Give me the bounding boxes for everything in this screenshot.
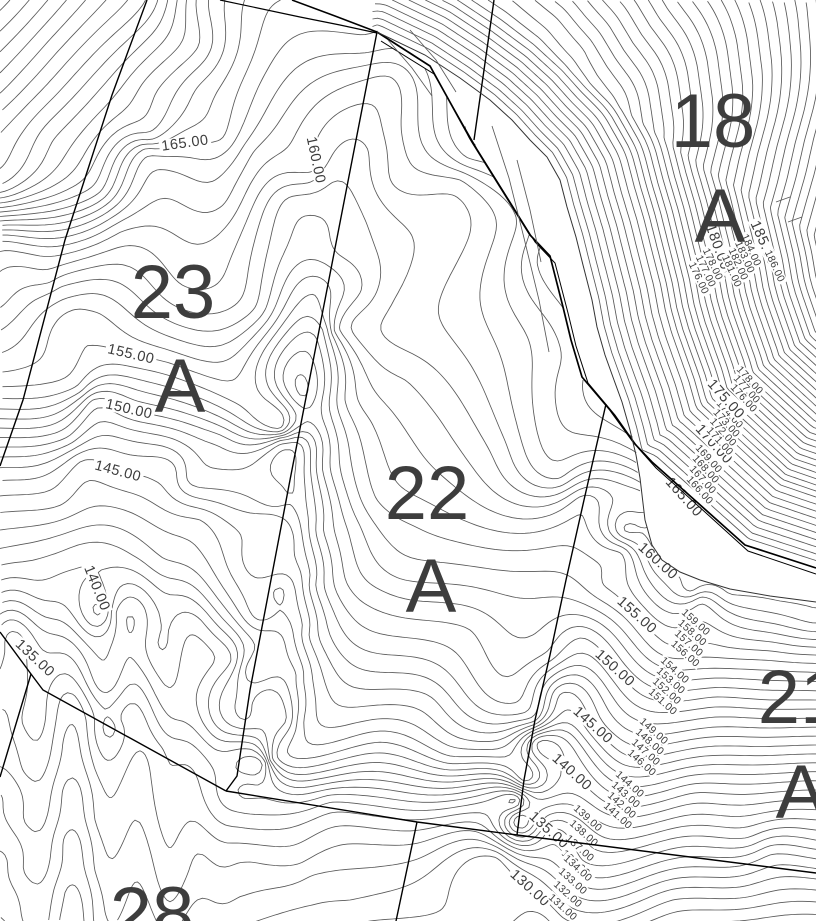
svg-text:23: 23: [131, 250, 216, 335]
svg-text:21: 21: [758, 655, 816, 740]
svg-text:A: A: [406, 544, 457, 629]
svg-text:22: 22: [385, 451, 470, 536]
svg-text:28: 28: [110, 872, 195, 921]
svg-text:A: A: [776, 750, 816, 835]
svg-text:A: A: [155, 344, 206, 429]
svg-text:A: A: [695, 174, 746, 259]
svg-text:18: 18: [671, 79, 756, 164]
